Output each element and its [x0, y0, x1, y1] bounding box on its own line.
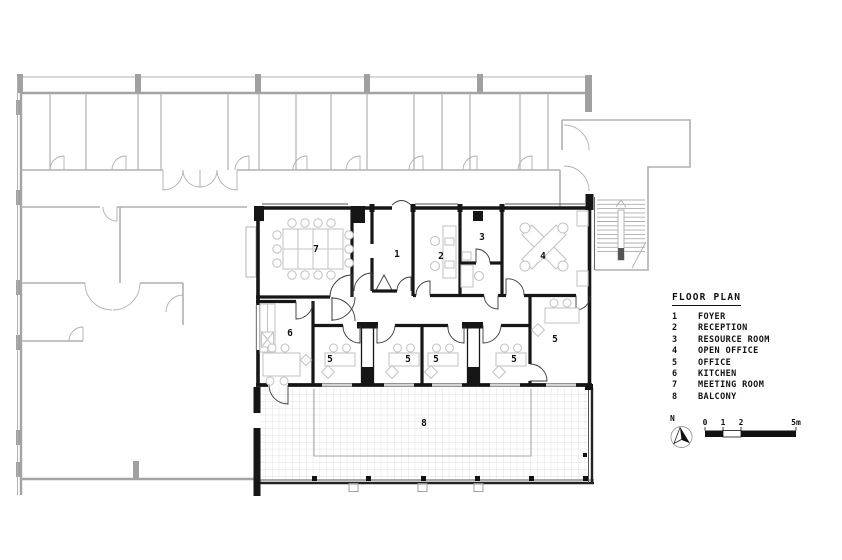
label-office-b: 5	[405, 354, 411, 365]
legend-label: OPEN OFFICE	[698, 346, 759, 357]
legend-num: 8	[672, 392, 698, 403]
context-door-arcs	[50, 156, 532, 190]
legend-rows: 1 FOYER 2 RECEPTION 3 RESOURCE ROOM 4 OP…	[672, 312, 770, 403]
scale-5m: 5m	[791, 418, 801, 427]
legend-title: FLOOR PLAN	[672, 292, 741, 306]
scale-seg-3	[741, 431, 796, 438]
corner-office-desk	[532, 299, 579, 336]
scale-0: 0	[703, 418, 708, 427]
label-resource-room: 3	[479, 232, 485, 243]
legend-label: KITCHEN	[698, 369, 737, 380]
scale-bar: 0 1 2 5m	[697, 416, 809, 444]
scale-1: 1	[721, 418, 726, 427]
balcony	[254, 384, 595, 496]
legend-label: MEETING ROOM	[698, 380, 764, 391]
drain-spouts	[349, 484, 483, 492]
cabinet	[246, 227, 256, 277]
legend-item-resource-room: 3 RESOURCE ROOM	[672, 335, 770, 346]
legend-label: FOYER	[698, 312, 726, 323]
legend-num: 2	[672, 323, 698, 334]
kitchen-fittings	[260, 304, 312, 385]
office-desk-d	[493, 344, 526, 378]
scale-seg-2	[723, 431, 741, 438]
legend-label: RECEPTION	[698, 323, 748, 334]
label-reception: 2	[438, 251, 444, 262]
right-wing-doors	[564, 125, 589, 191]
office-desk-b	[386, 344, 419, 378]
left-section-walls	[21, 207, 258, 479]
legend: FLOOR PLAN 1 FOYER 2 RECEPTION 3 RESOURC…	[672, 292, 770, 403]
label-kitchen: 6	[287, 328, 293, 339]
legend-num: 4	[672, 346, 698, 357]
label-open-office: 4	[540, 251, 546, 262]
left-section-doors	[69, 207, 183, 341]
legend-item-balcony: 8 BALCONY	[672, 392, 770, 403]
staircase	[597, 200, 646, 268]
legend-item-meeting-room: 7 MEETING ROOM	[672, 380, 770, 391]
legend-label: RESOURCE ROOM	[698, 335, 770, 346]
legend-num: 3	[672, 335, 698, 346]
legend-item-foyer: 1 FOYER	[672, 312, 770, 323]
label-office-c: 5	[433, 354, 439, 365]
resource-room-desk	[461, 252, 484, 287]
office-desk-c	[425, 344, 458, 378]
label-office-e: 5	[552, 334, 558, 345]
scale-ticks	[705, 427, 796, 431]
label-office-a: 5	[327, 354, 333, 365]
legend-item-reception: 2 RECEPTION	[672, 323, 770, 334]
north-label: N	[670, 414, 675, 423]
legend-num: 5	[672, 358, 698, 369]
scale-2: 2	[739, 418, 744, 427]
label-meeting-room: 7	[313, 244, 319, 255]
legend-label: BALCONY	[698, 392, 737, 403]
legend-label: OFFICE	[698, 358, 731, 369]
legend-item-office: 5 OFFICE	[672, 358, 770, 369]
legend-item-open-office: 4 OPEN OFFICE	[672, 346, 770, 357]
legend-num: 6	[672, 369, 698, 380]
label-foyer: 1	[394, 249, 400, 260]
legend-num: 1	[672, 312, 698, 323]
scale-seg-1	[705, 431, 723, 438]
legend-num: 7	[672, 380, 698, 391]
label-balcony: 8	[421, 418, 427, 429]
legend-item-kitchen: 6 KITCHEN	[672, 369, 770, 380]
floor-plan-page: 7 1 2 3 4 6 5 5 5 5 5 8 FLOOR PLAN 1 FOY…	[0, 0, 842, 560]
floor-plan-drawing: 7 1 2 3 4 6 5 5 5 5 5 8	[0, 0, 842, 560]
open-office-desks	[510, 211, 588, 286]
label-office-d: 5	[511, 354, 517, 365]
